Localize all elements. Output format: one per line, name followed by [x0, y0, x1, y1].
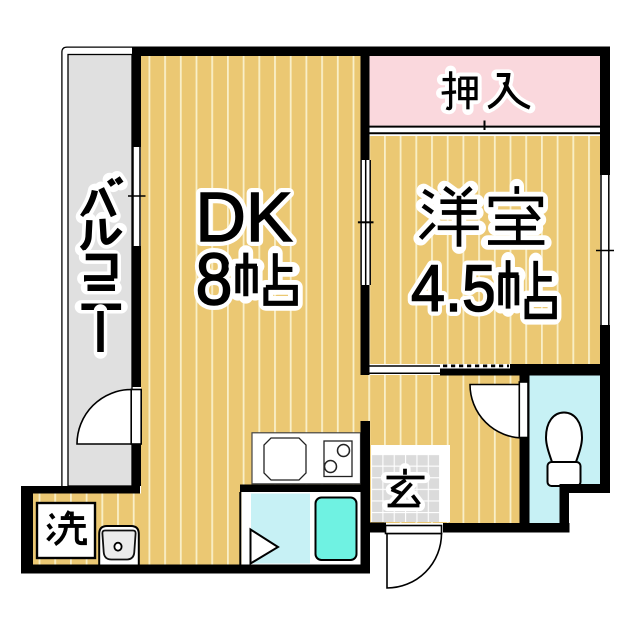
svg-text:8: 8 — [196, 240, 233, 321]
svg-text:4.5: 4.5 — [411, 251, 496, 325]
